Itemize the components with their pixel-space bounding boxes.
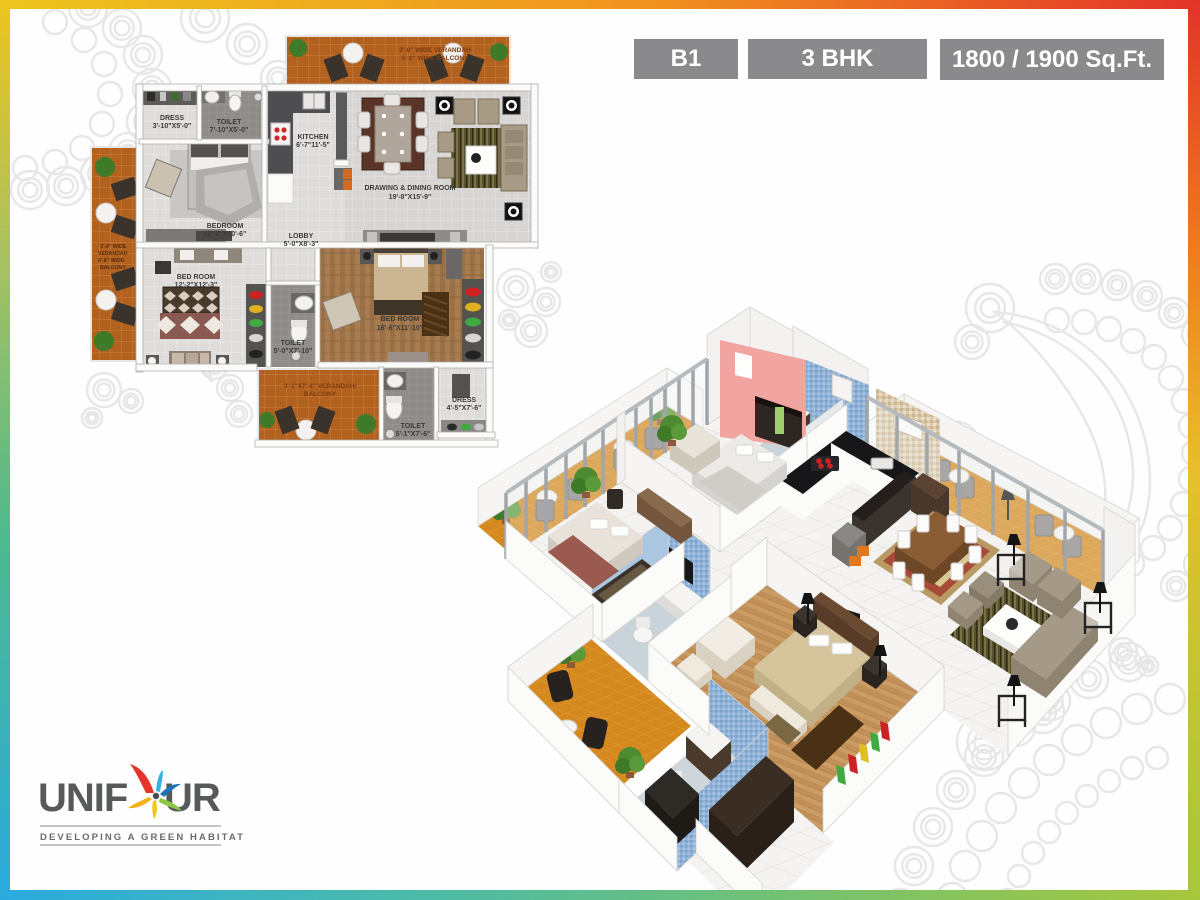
svg-text:DEVELOPING A GREEN HABITAT: DEVELOPING A GREEN HABITAT: [40, 832, 245, 843]
svg-text:UR: UR: [164, 776, 221, 820]
svg-text:UNIF: UNIF: [38, 776, 127, 820]
